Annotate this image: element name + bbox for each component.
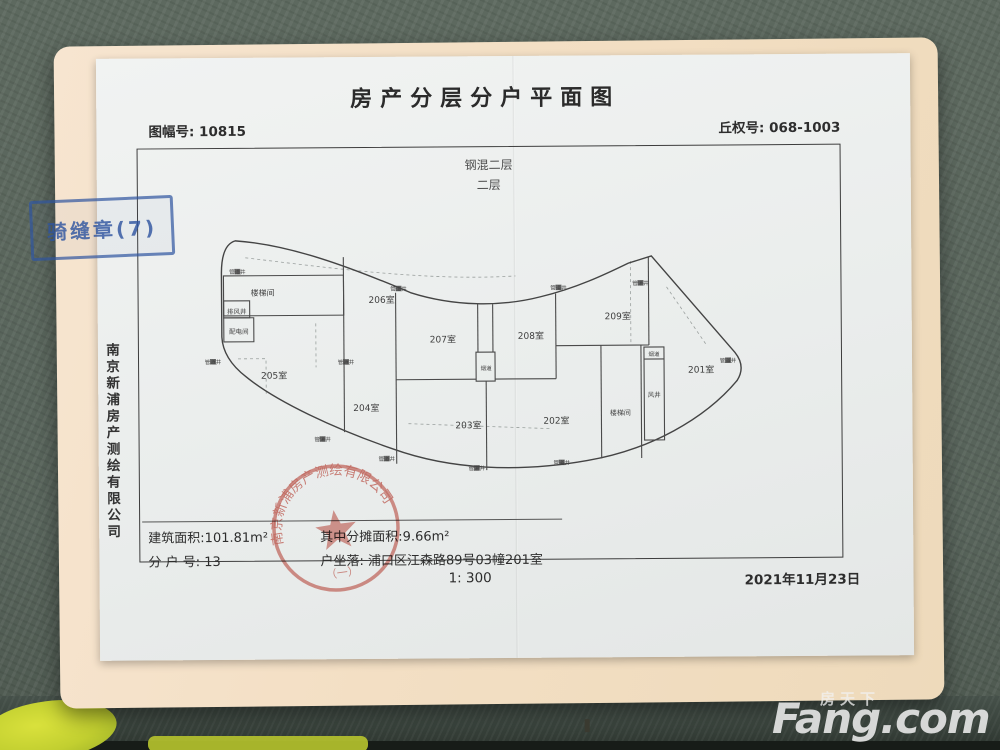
svg-text:配电间: 配电间 [229, 327, 249, 336]
svg-text:烟道: 烟道 [648, 350, 660, 358]
unit-number-value: 13 [204, 555, 221, 570]
svg-text:202室: 202室 [543, 415, 569, 427]
plot-number: 丘权号: 068-1003 [718, 116, 840, 137]
svg-text:楼梯间: 楼梯间 [251, 288, 275, 298]
sheet-number-label: 图幅号: [148, 124, 194, 140]
svg-text:风井: 风井 [648, 390, 662, 399]
document-title: 房产分层分户平面图 [96, 77, 910, 115]
staple-mark [585, 719, 590, 732]
structure-note: 钢混二层 二层 [138, 153, 840, 198]
survey-date: 2021年11月23日 [744, 568, 860, 589]
sheet-number-row: 图幅号: 10815 丘权号: 068-1003 [96, 115, 910, 121]
building-area-value: 101.81m² [205, 531, 268, 546]
svg-text:管道井: 管道井 [468, 464, 485, 472]
svg-text:管道井: 管道井 [553, 459, 570, 467]
svg-text:207室: 207室 [430, 333, 456, 345]
svg-text:管道井: 管道井 [205, 358, 222, 366]
svg-text:208室: 208室 [518, 330, 544, 342]
svg-text:206室: 206室 [368, 294, 394, 306]
plan-labels: 201室202室203室204室205室206室207室208室209室楼梯间排… [204, 264, 737, 474]
svg-text:203室: 203室 [455, 419, 481, 431]
photo-scene: 房产分层分户平面图 图幅号: 10815 丘权号: 068-1003 钢混二层 … [0, 0, 1000, 750]
svg-text:管道井: 管道井 [314, 435, 331, 443]
svg-text:205室: 205室 [261, 370, 287, 382]
fang-watermark-logo: Fang.com [772, 694, 990, 743]
svg-text:排风井: 排风井 [227, 307, 247, 316]
floor-label: 二层 [138, 173, 840, 198]
svg-text:管道井: 管道井 [550, 284, 567, 292]
map-scale: 1: 300 [448, 570, 491, 586]
fang-watermark: 房天下 Fang.com [772, 690, 982, 746]
interior-walls [223, 255, 664, 472]
sheet-number: 图幅号: 10815 [148, 120, 246, 141]
svg-text:204室: 204室 [353, 402, 379, 414]
svg-text:209室: 209室 [605, 310, 631, 322]
building-area-label: 建筑面积: [148, 531, 204, 546]
plot-number-label: 丘权号: [718, 120, 764, 136]
surveying-company: 南京新浦房产测绘有限公司 [101, 343, 122, 541]
seal-star-icon [313, 507, 359, 551]
paging-seal-stamp: 骑缝章(7) [29, 195, 175, 261]
shared-area-value: 9.66m² [403, 529, 450, 544]
floor-plan: 201室202室203室204室205室206室207室208室209室楼梯间排… [185, 224, 757, 478]
unit-number-label: 分 户 号: [148, 555, 200, 570]
svg-text:201室: 201室 [688, 364, 714, 376]
paging-seal-text: 骑缝章(7) [46, 211, 157, 245]
document-page: 房产分层分户平面图 图幅号: 10815 丘权号: 068-1003 钢混二层 … [96, 53, 914, 661]
plot-number-value: 068-1003 [769, 120, 840, 136]
yellow-folder-strip [148, 736, 368, 750]
svg-text:管道井: 管道井 [720, 356, 737, 364]
sheet-number-value: 10815 [199, 124, 246, 140]
svg-text:楼梯间: 楼梯间 [610, 408, 631, 417]
drawing-frame: 钢混二层 二层 [137, 144, 844, 563]
svg-text:管道井: 管道井 [229, 268, 246, 276]
svg-text:烟道: 烟道 [481, 364, 493, 372]
svg-text:管道井: 管道井 [390, 285, 407, 293]
svg-text:管道井: 管道井 [632, 279, 649, 287]
svg-text:管道井: 管道井 [338, 358, 355, 366]
seal-bottom-text: （一） [325, 564, 359, 581]
red-company-seal: 南京新浦房产测绘有限公司 （一） [257, 449, 415, 607]
